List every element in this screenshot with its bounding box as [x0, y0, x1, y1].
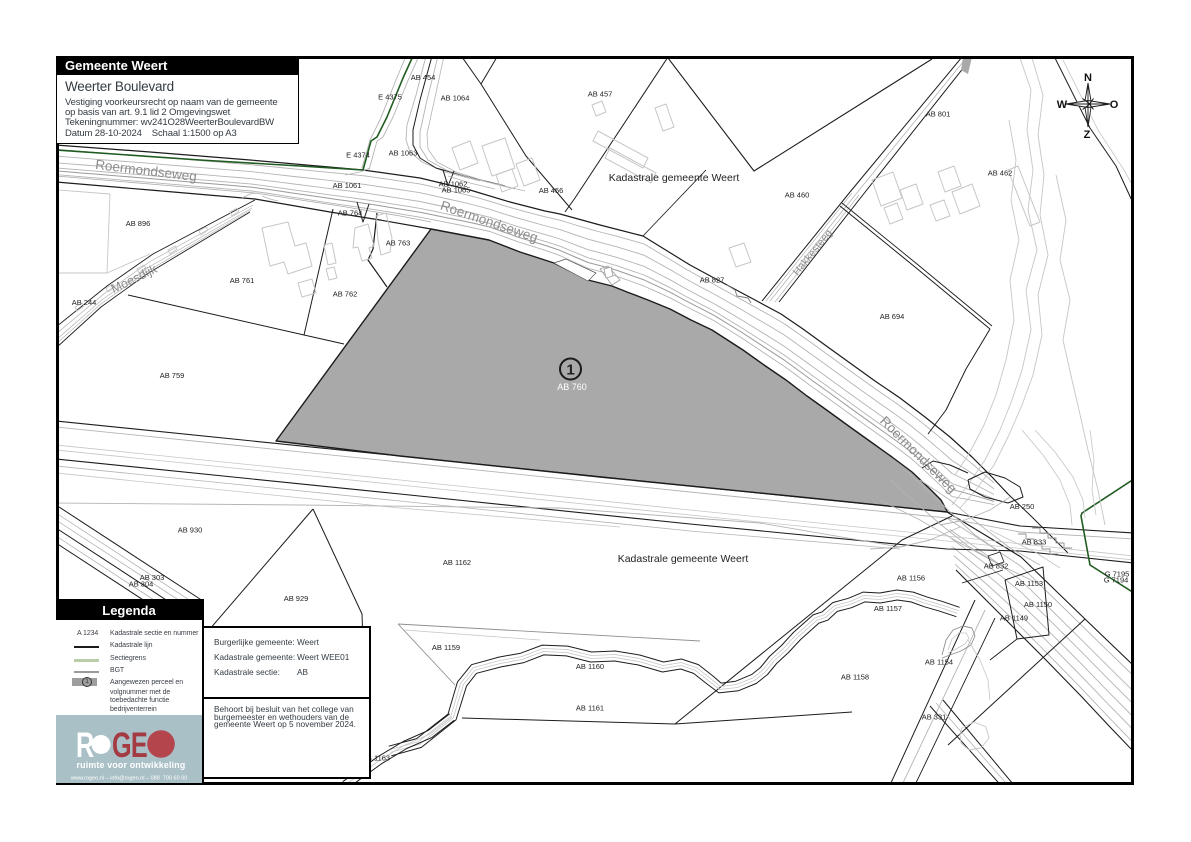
- svg-text:ruimte voor ontwikkeling: ruimte voor ontwikkeling: [77, 760, 186, 770]
- svg-text:www.rogeo.nl – info@rogeo.nl –: www.rogeo.nl – info@rogeo.nl – 088 700 6…: [70, 775, 187, 781]
